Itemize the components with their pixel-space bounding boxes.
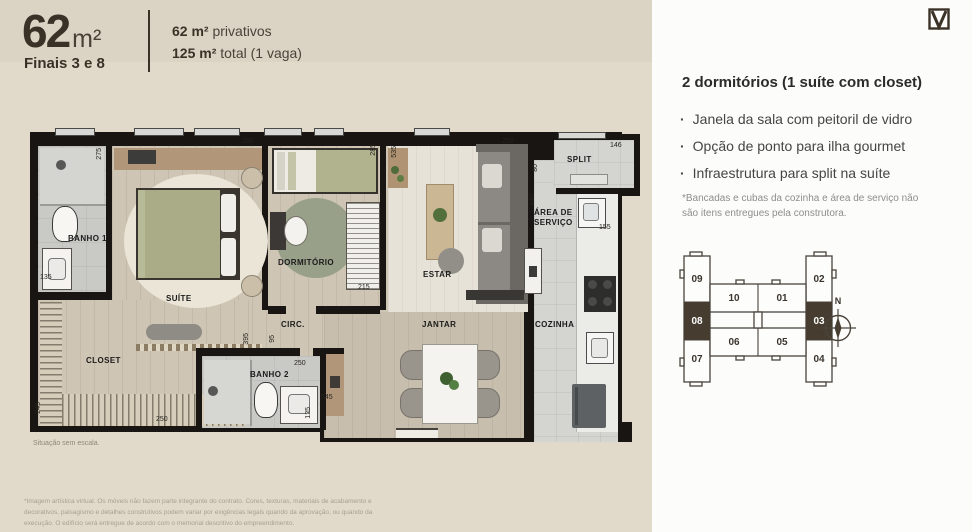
keyplan-unit-09: 09 [684, 272, 710, 286]
dormitorio-pillow-1 [277, 152, 285, 190]
jantar-chair-3 [476, 350, 500, 380]
legal-disclaimer: *Imagem artística virtual. Os móveis não… [24, 496, 392, 529]
banho2-shower-head [208, 386, 218, 396]
dim-label-8: 155 [599, 224, 611, 231]
stove-burner-3 [588, 297, 597, 306]
stove-burner-4 [603, 297, 612, 306]
wall-banho1-bottom [38, 292, 112, 300]
window-dormitorio-a [264, 128, 302, 136]
suite-bed-duvet [138, 190, 220, 278]
estar-planter-plant-2 [397, 175, 404, 182]
suite-nightstand-1 [241, 167, 263, 189]
window-dormitorio-b [314, 128, 344, 136]
window-suite-a [134, 128, 184, 136]
keyplan-unit-06: 06 [721, 335, 747, 349]
window-banho1 [55, 128, 95, 136]
banho1-shower [40, 148, 104, 204]
total-area-line: 125 m² total (1 vaga) [172, 45, 302, 61]
sofa-seat-divider [478, 222, 510, 225]
dim-label-11: 245 [35, 402, 42, 414]
split-condenser [570, 174, 608, 185]
dim-label-9: 215 [358, 284, 370, 291]
sofa-pillow-1 [482, 164, 502, 188]
room-label-jantar: JANTAR [422, 320, 456, 329]
dormitorio-wardrobe [346, 202, 380, 290]
dim-label-1: 260 [242, 138, 254, 145]
compass-icon: N [816, 294, 860, 354]
dormitorio-pillow-2 [288, 152, 296, 190]
room-label-banho-2: BANHO 2 [250, 370, 289, 379]
wall-dormitorio-estar [380, 146, 386, 310]
area-headline: 62 m² [22, 4, 101, 58]
jantar-chair-2 [400, 388, 424, 418]
banho2-cabinet-detail [330, 376, 340, 388]
jantar-chair-4 [476, 388, 500, 418]
window-suite-b [194, 128, 240, 136]
room-label-estar: ESTAR [423, 270, 452, 279]
room-label-su-te: SUÍTE [166, 294, 192, 303]
suite-pillow-2 [221, 238, 236, 276]
keyplan-unit-08: 08 [684, 302, 710, 340]
dim-label-2: 285 [370, 144, 377, 156]
suite-bench [146, 324, 202, 340]
dim-label-16: 545 [321, 394, 333, 401]
room-label-servi-o: SERVIÇO [534, 218, 573, 227]
feature-item-2: Infraestrutura para split na suíte [680, 160, 912, 187]
dim-label-12: 250 [156, 416, 168, 423]
feature-item-1: Opção de ponto para ilha gourmet [680, 133, 912, 160]
keyplan-unit-04: 04 [806, 352, 832, 366]
stove-burner-1 [588, 280, 597, 289]
dim-label-15: 250 [294, 360, 306, 367]
floor-plan: Situação sem escala. BANHO 1SUÍTECLOSETD… [22, 122, 664, 458]
keyplan-unit-05: 05 [769, 335, 795, 349]
brand-logo-icon [928, 8, 950, 30]
page: { "header": { "area_big": "62", "area_un… [0, 0, 972, 532]
entry-door [396, 428, 438, 438]
closet-shelves-left [40, 302, 62, 426]
room-label-split: SPLIT [567, 155, 592, 164]
dim-label-14: 95 [269, 335, 276, 343]
keyplan-unit-01: 01 [769, 291, 795, 305]
keyplan-unit-07: 07 [684, 352, 710, 366]
dim-label-0: 275 [96, 148, 103, 160]
feature-list: Janela da sala com peitoril de vidroOpçã… [680, 106, 912, 187]
suite-bed-fold [138, 190, 145, 278]
room-label-cozinha: COZINHA [535, 320, 574, 329]
wall-banho1-right [106, 146, 112, 278]
dim-label-5: 146 [610, 142, 622, 149]
keyplan-unit-10: 10 [721, 291, 747, 305]
finais-label: Finais 3 e 8 [24, 55, 105, 72]
dim-label-10: 135 [40, 274, 52, 281]
dormitorio-chair [284, 216, 308, 246]
keyplan-unit-02: 02 [806, 272, 832, 286]
suite-pillow-1 [221, 194, 236, 232]
feature-item-0: Janela da sala com peitoril de vidro [680, 106, 912, 133]
private-area-line: 62 m² privativos [172, 23, 272, 39]
estar-console-plant [433, 208, 447, 222]
wall-closet-banho2 [196, 356, 202, 428]
area-value: 62 [22, 4, 69, 58]
dim-label-13: 395 [243, 333, 250, 345]
room-label--rea-de: ÁREA DE [534, 208, 573, 217]
cozinha-sink-basin [591, 338, 608, 358]
servico-tank-basin [583, 203, 599, 221]
features-footnote: *Bancadas e cubas da cozinha e área de s… [682, 192, 934, 221]
window-estar [414, 128, 450, 136]
unit-description-title: 2 dormitórios (1 suíte com closet) [682, 74, 922, 91]
room-label-circ-: CIRC. [281, 320, 305, 329]
room-label-banho-1: BANHO 1 [68, 234, 107, 243]
sofa-pillow-2 [482, 228, 502, 252]
banho1-shower-head [56, 160, 66, 170]
wall-jantar-cozinha [524, 312, 528, 438]
private-area-value: 62 m² [172, 23, 209, 39]
wall-dormitorio-bottom-a [268, 306, 286, 314]
private-area-rest: privativos [209, 23, 272, 39]
window-split [558, 132, 606, 139]
room-label-closet: CLOSET [86, 356, 121, 365]
dim-label-4: 250 [502, 138, 514, 145]
dim-label-3: 535 [391, 146, 398, 158]
wall-banho2-top-a [196, 348, 300, 356]
estar-planter-plant-1 [391, 166, 399, 174]
compass-north-label: N [835, 296, 842, 306]
dim-label-17: 125 [305, 407, 312, 419]
tv-bench [466, 290, 524, 300]
suite-nightstand-2 [241, 275, 263, 297]
suite-tv [128, 150, 156, 164]
scale-note: Situação sem escala. [33, 440, 100, 447]
total-area-value: 125 m² [172, 45, 216, 61]
banho2-toilet [254, 382, 278, 418]
wall-dormitorio-bottom-b [316, 306, 380, 314]
dim-label-6: 80 [532, 164, 539, 172]
total-area-rest: total (1 vaga) [216, 45, 302, 61]
dormitorio-bed-duvet [316, 150, 376, 192]
jantar-table-plant-2 [449, 380, 459, 390]
dim-label-7: 440 [529, 194, 536, 206]
cozinha-heater-panel [529, 266, 537, 277]
jantar-chair-1 [400, 350, 424, 380]
banho1-shower-glass [40, 204, 106, 206]
stove-burner-2 [603, 280, 612, 289]
fridge-handle [575, 387, 578, 425]
area-unit: m² [72, 25, 101, 54]
header-divider [148, 10, 150, 72]
room-label-dormit-rio: DORMITÓRIO [278, 258, 334, 267]
